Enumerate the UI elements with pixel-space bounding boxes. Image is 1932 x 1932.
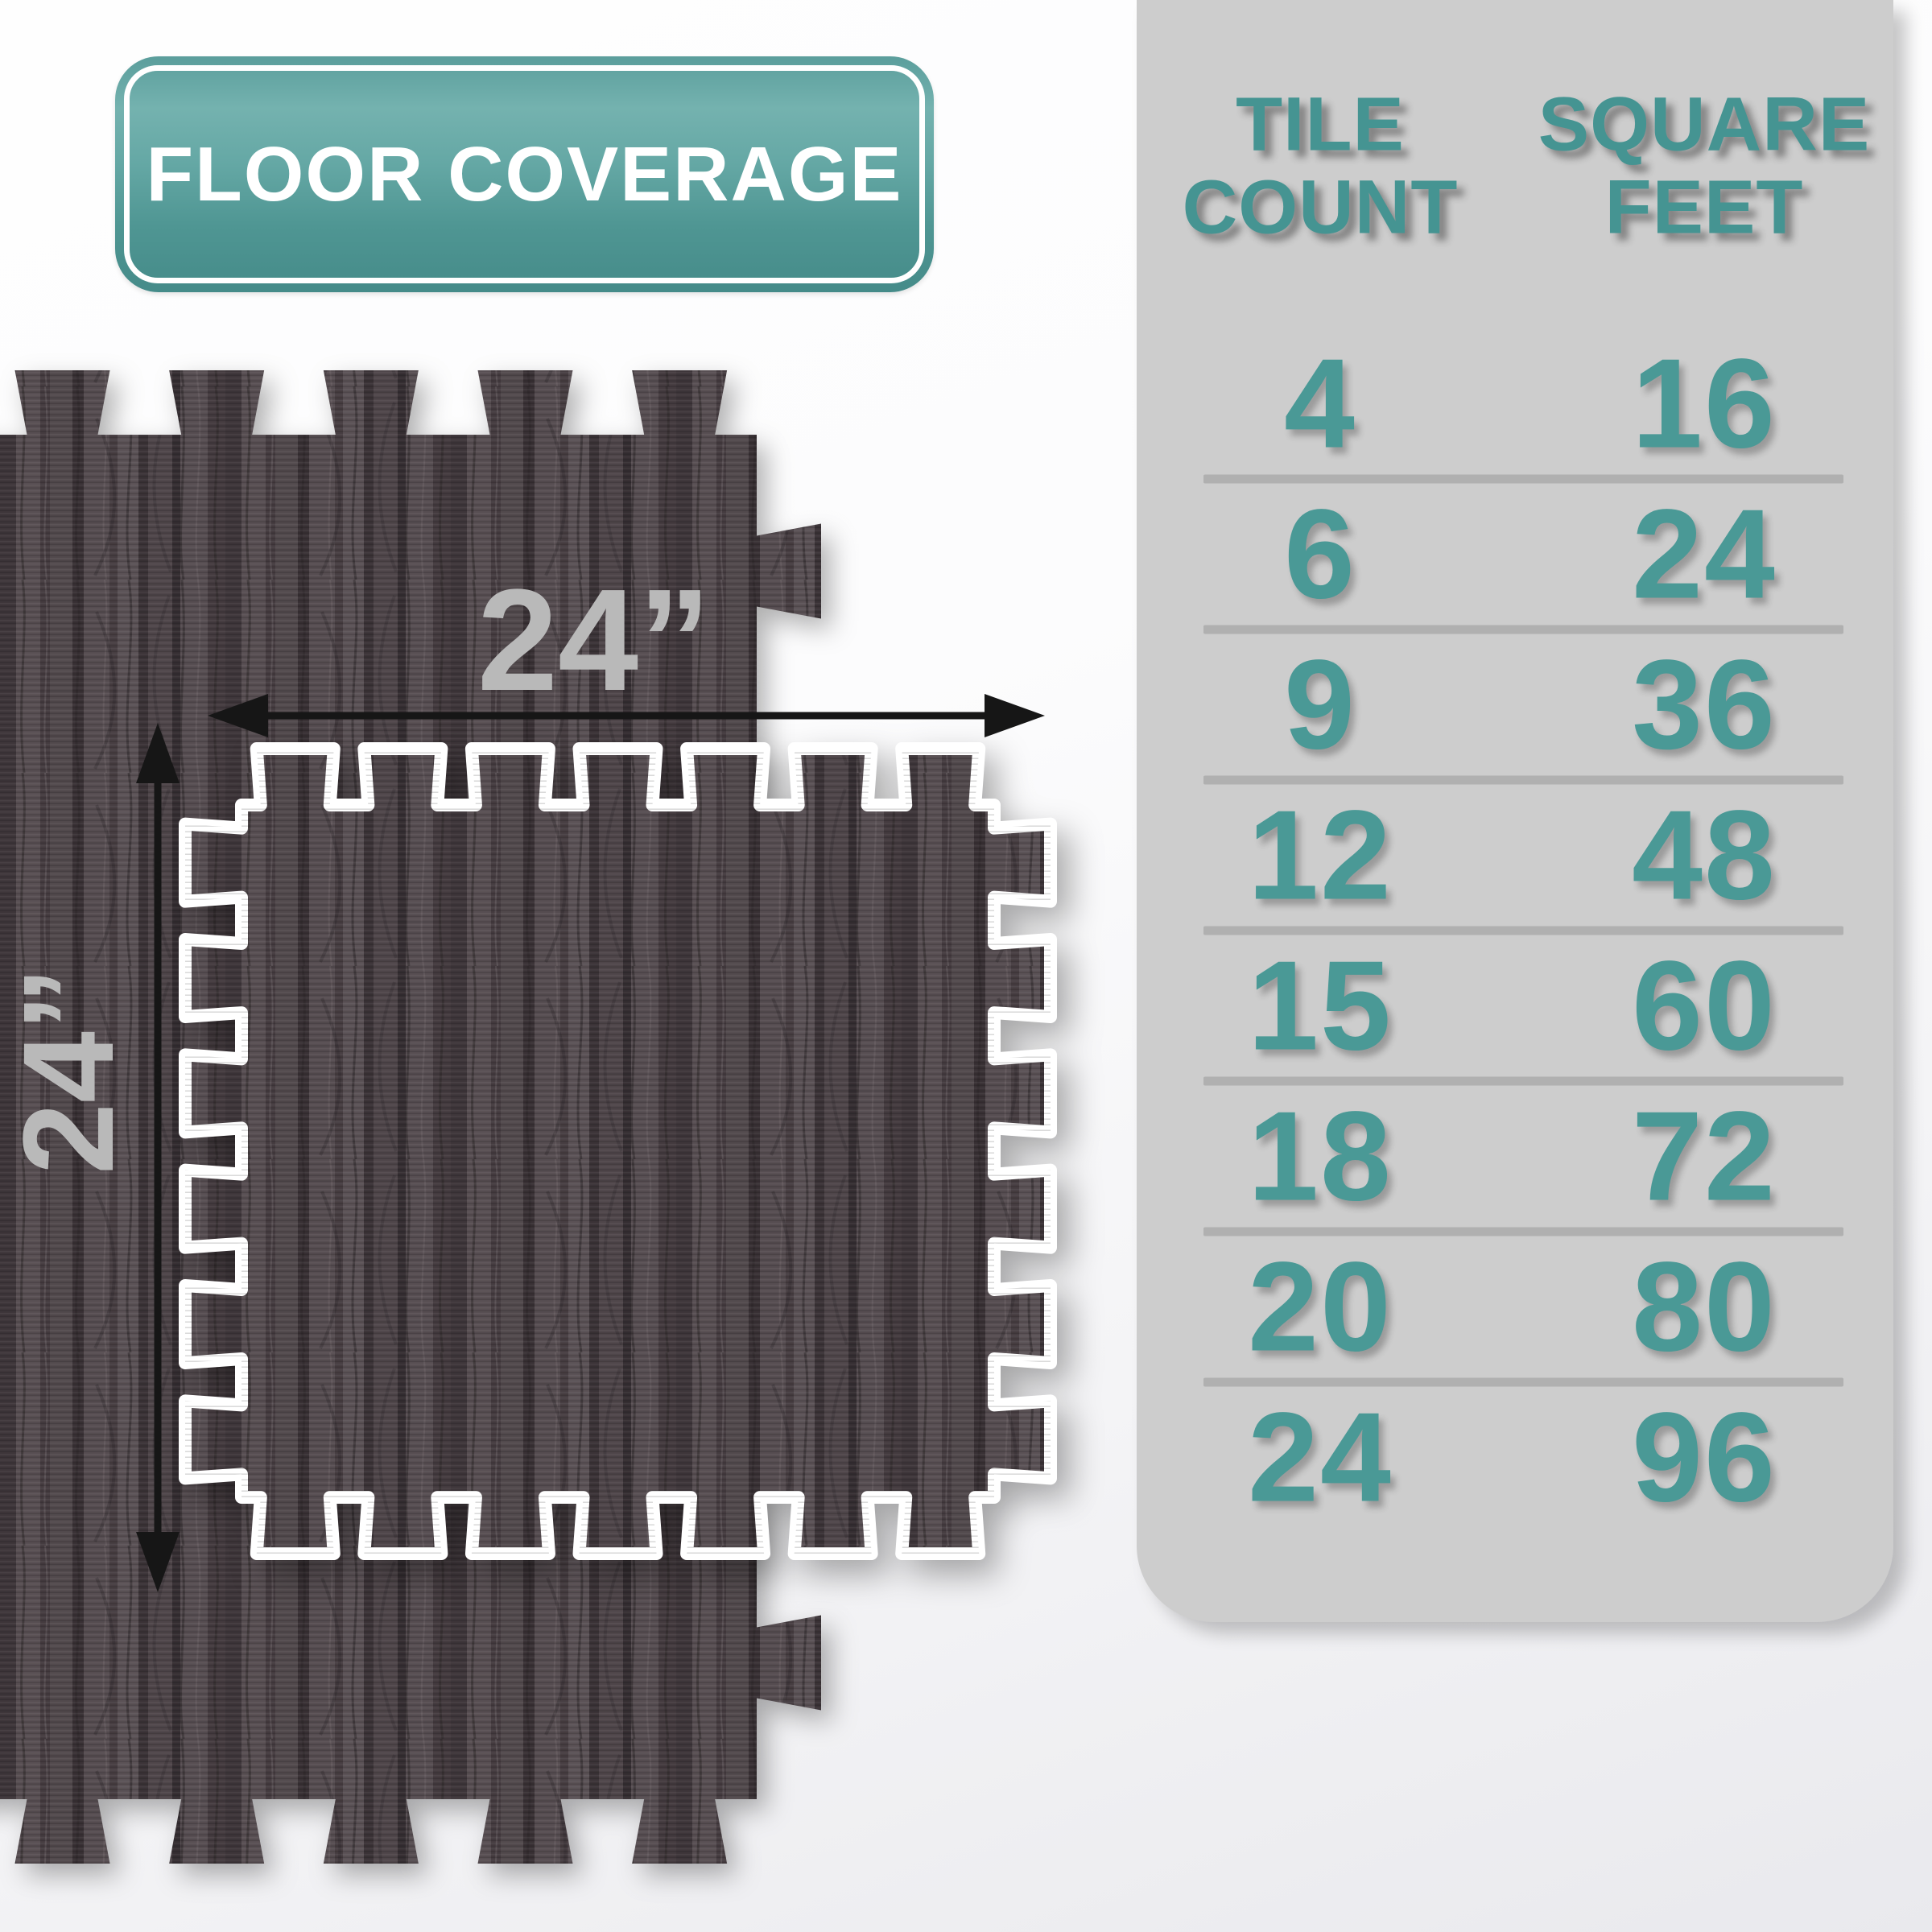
tile-count-cell: 20 bbox=[1143, 1235, 1497, 1381]
tile-count-cell: 12 bbox=[1143, 783, 1497, 929]
table-row: 24 96 bbox=[1137, 1389, 1893, 1526]
table-row: 20 80 bbox=[1137, 1239, 1893, 1376]
tile-count-cell: 9 bbox=[1143, 633, 1497, 778]
table-row: 12 48 bbox=[1137, 787, 1893, 924]
table-header-line1: TILE SQUARE bbox=[1137, 80, 1893, 169]
square-feet-cell: 72 bbox=[1527, 1084, 1881, 1230]
square-feet-cell: 36 bbox=[1527, 633, 1881, 778]
table-row: 4 16 bbox=[1137, 336, 1893, 473]
table-row: 18 72 bbox=[1137, 1088, 1893, 1225]
floor-coverage-badge: FLOOR COVERAGE bbox=[115, 56, 934, 292]
tile-count-cell: 24 bbox=[1143, 1385, 1497, 1531]
square-feet-cell: 16 bbox=[1527, 332, 1881, 477]
table-row: 15 60 bbox=[1137, 938, 1893, 1075]
tile-count-cell: 4 bbox=[1143, 332, 1497, 477]
badge-label: FLOOR COVERAGE bbox=[146, 130, 902, 219]
table-header-line2: COUNT FEET bbox=[1137, 163, 1893, 252]
front-tile bbox=[185, 749, 1051, 1554]
square-feet-header: FEET bbox=[1527, 164, 1881, 252]
square-feet-cell: 24 bbox=[1527, 482, 1881, 628]
tile-width-label: 24” bbox=[433, 563, 755, 716]
tile-count-cell: 15 bbox=[1143, 934, 1497, 1080]
coverage-panel: TILE SQUARE COUNT FEET 4 16 6 24 9 36 12… bbox=[1137, 0, 1893, 1622]
tile-count-cell: 6 bbox=[1143, 482, 1497, 628]
tile-count-cell: 18 bbox=[1143, 1084, 1497, 1230]
tile-count-header: COUNT bbox=[1143, 164, 1497, 252]
square-feet-cell: 96 bbox=[1527, 1385, 1881, 1531]
product-infographic: FLOOR COVERAGE 24” 24” TILE SQUARE COUNT… bbox=[0, 0, 1932, 1932]
tile-height-label: 24” bbox=[0, 910, 145, 1232]
table-row: 9 36 bbox=[1137, 637, 1893, 774]
table-row: 6 24 bbox=[1137, 486, 1893, 623]
square-feet-cell: 60 bbox=[1527, 934, 1881, 1080]
square-feet-cell: 48 bbox=[1527, 783, 1881, 929]
square-feet-cell: 80 bbox=[1527, 1235, 1881, 1381]
square-feet-header: SQUARE bbox=[1527, 81, 1881, 169]
tile-count-header: TILE bbox=[1143, 81, 1497, 169]
